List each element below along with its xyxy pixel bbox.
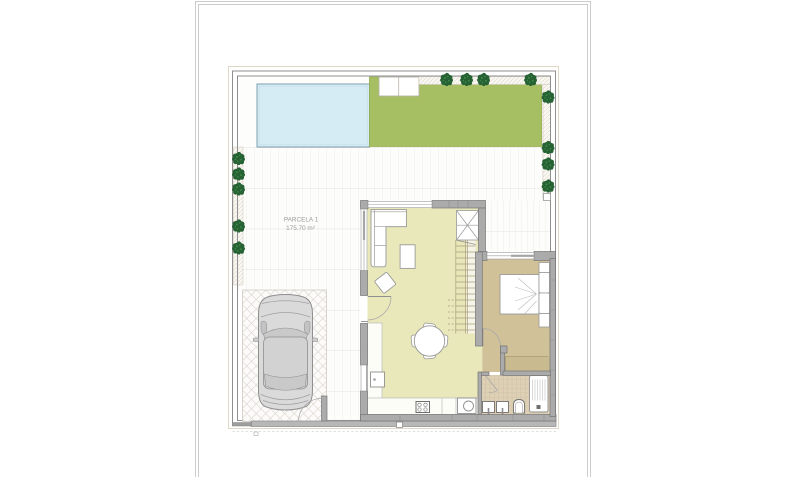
svg-text:175.70 m²: 175.70 m² — [286, 225, 315, 232]
svg-text:PARCELA 1: PARCELA 1 — [284, 217, 319, 224]
